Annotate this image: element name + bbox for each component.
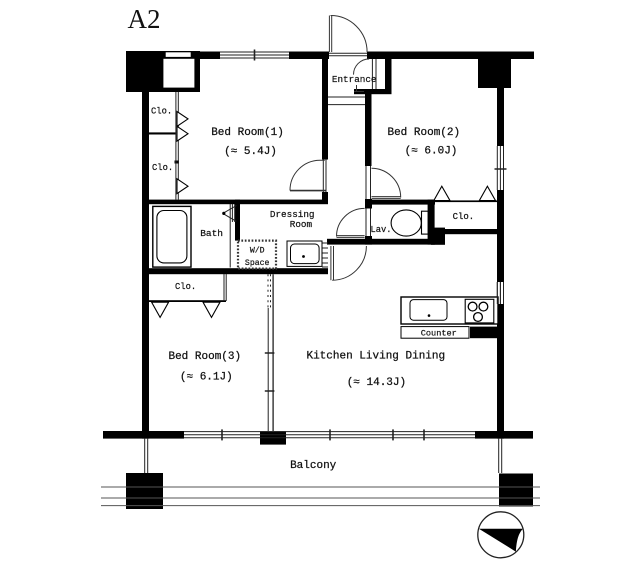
svg-text:W/D: W/D: [250, 246, 265, 256]
svg-text:Room: Room: [290, 219, 313, 230]
svg-text:(≈ 5.4J): (≈ 5.4J): [224, 146, 277, 158]
svg-text:Kitchen Living Dining: Kitchen Living Dining: [306, 350, 445, 362]
svg-text:Balcony: Balcony: [290, 460, 337, 472]
svg-text:Bed Room(1): Bed Room(1): [211, 127, 284, 139]
svg-text:Clo.: Clo.: [453, 212, 475, 222]
svg-text:Bed Room(2): Bed Room(2): [387, 127, 460, 139]
svg-text:Bed Room(3): Bed Room(3): [168, 351, 241, 363]
svg-text:A2: A2: [128, 4, 161, 34]
svg-text:(≈ 6.1J): (≈ 6.1J): [180, 372, 233, 384]
svg-text:Counter: Counter: [421, 329, 457, 339]
svg-text:Clo.: Clo.: [151, 107, 172, 117]
svg-text:(≈ 14.3J): (≈ 14.3J): [347, 377, 406, 389]
svg-text:Entrance: Entrance: [332, 74, 377, 85]
svg-text:Clo.: Clo.: [152, 163, 173, 173]
svg-text:Bath: Bath: [200, 228, 223, 239]
svg-text:(≈ 6.0J): (≈ 6.0J): [405, 146, 458, 158]
svg-text:Clo.: Clo.: [175, 282, 196, 292]
svg-text:Lav.: Lav.: [370, 225, 391, 235]
svg-text:Space: Space: [245, 259, 270, 268]
